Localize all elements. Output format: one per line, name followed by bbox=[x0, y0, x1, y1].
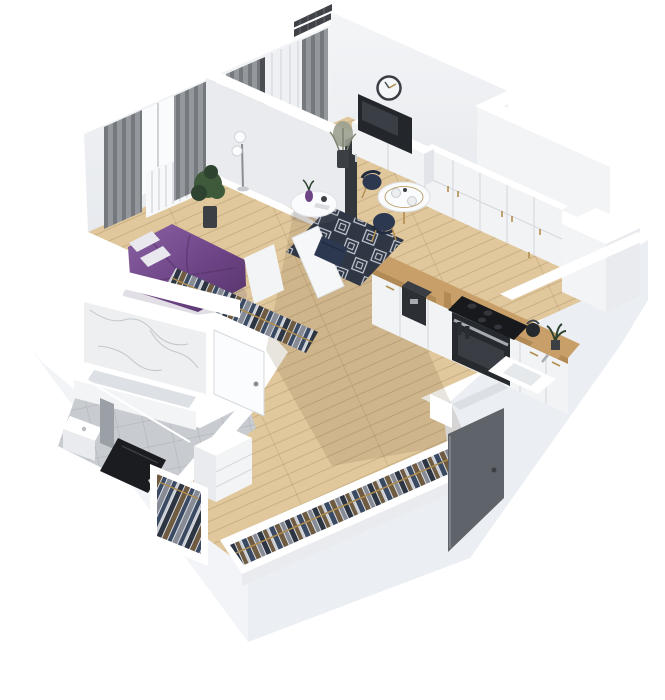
floor-plan-render bbox=[0, 0, 665, 700]
plate-1 bbox=[392, 189, 401, 198]
entrance-door-handle bbox=[492, 468, 497, 473]
coffee-table bbox=[291, 191, 337, 217]
apartment-3d-floor-plan bbox=[0, 0, 665, 700]
table-decor bbox=[403, 188, 407, 192]
bedroom-curtain-left bbox=[104, 110, 142, 229]
salt-grinder bbox=[465, 326, 470, 339]
coffee-machine-panel bbox=[410, 299, 418, 304]
coffee-table-cup bbox=[321, 196, 327, 202]
plate-2 bbox=[408, 197, 417, 206]
bathroom-door-handle bbox=[254, 382, 259, 387]
pepper-grinder bbox=[457, 322, 462, 335]
kettle bbox=[526, 323, 540, 337]
tv-sideboard-side bbox=[424, 149, 434, 186]
dining-chair-1 bbox=[363, 174, 382, 190]
gray-partition-panel bbox=[100, 398, 114, 449]
basin-drain bbox=[82, 427, 86, 431]
